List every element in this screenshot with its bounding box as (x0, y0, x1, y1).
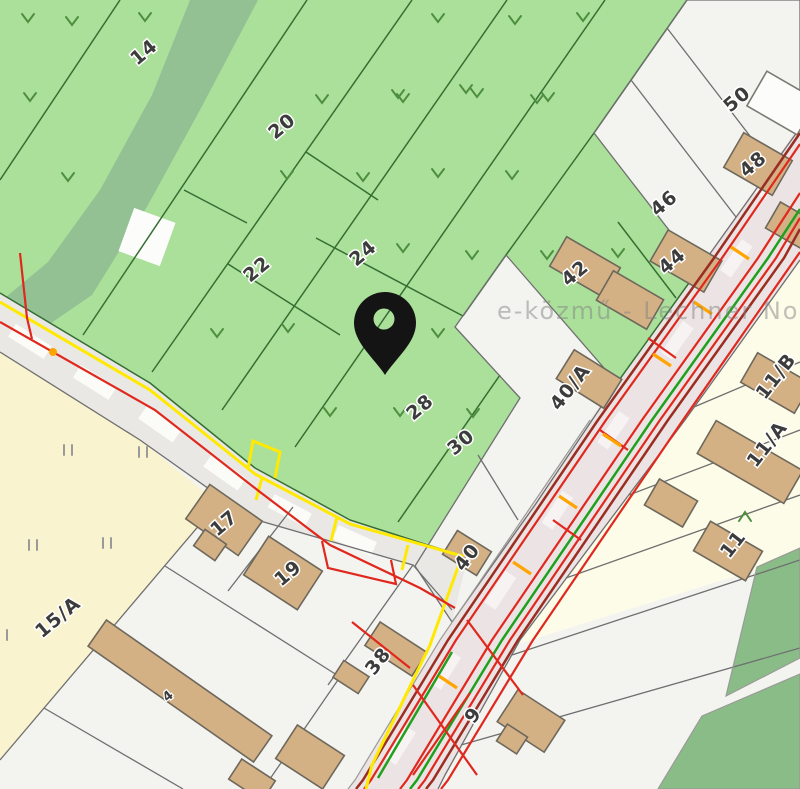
watermark: e-közmű - Lechner Nonpr (497, 297, 800, 325)
utility-marker-orange (49, 348, 57, 356)
map-canvas[interactable]: e-közmű - Lechner Nonpr 14 20 22 24 28 3… (0, 0, 800, 789)
